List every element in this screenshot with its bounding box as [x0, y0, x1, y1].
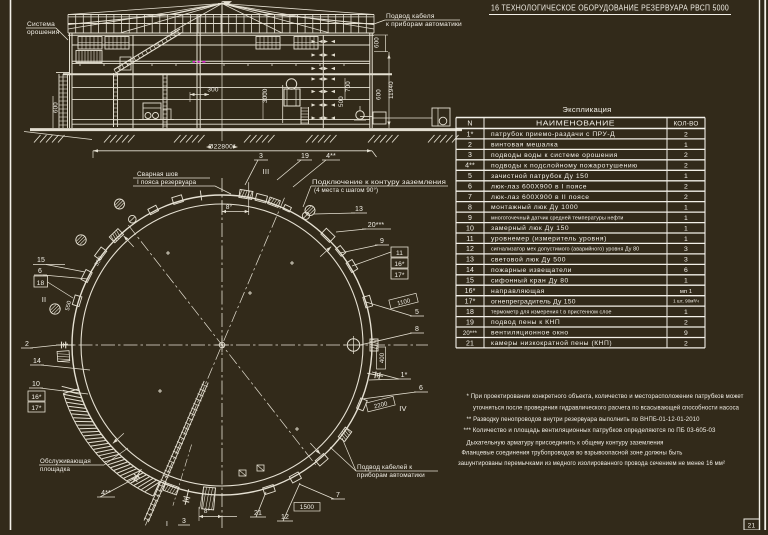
svg-text:монтажный люк Ду 1000: монтажный люк Ду 1000 — [491, 203, 578, 211]
svg-text:2: 2 — [684, 184, 688, 191]
svg-text:замерный люк Ду 150: замерный люк Ду 150 — [491, 224, 569, 232]
svg-text:21: 21 — [748, 523, 756, 530]
svg-text:** Разводку пенопроводов внутр: ** Разводку пенопроводов внутри резервуа… — [467, 416, 700, 423]
svg-text:16*: 16* — [465, 288, 476, 295]
svg-text:Сварная шов: Сварная шов — [137, 171, 179, 178]
svg-text:5: 5 — [468, 173, 472, 180]
svg-text:подводы воды к системе орошени: подводы воды к системе орошения — [491, 152, 618, 159]
svg-text:550: 550 — [65, 300, 73, 311]
svg-text:3: 3 — [468, 152, 472, 159]
svg-text:2: 2 — [684, 163, 688, 170]
svg-text:16 ТЕХНОЛОГИЧЕСКОЕ ОБОРУДОВАНИ: 16 ТЕХНОЛОГИЧЕСКОЕ ОБОРУДОВАНИЕ РЕЗЕРВУА… — [491, 4, 729, 13]
svg-text:2: 2 — [684, 340, 688, 347]
svg-text:5: 5 — [415, 309, 419, 316]
svg-text:Подвод кабеля: Подвод кабеля — [386, 12, 435, 20]
svg-text:III: III — [263, 167, 270, 176]
svg-text:зашунтированы перемычками из м: зашунтированы перемычками из медного изо… — [458, 460, 725, 467]
svg-text:10: 10 — [32, 381, 40, 388]
svg-text:подводы к подслойному пожароту: подводы к подслойному пожаротушению — [491, 162, 638, 170]
svg-text:4**: 4** — [465, 163, 475, 170]
svg-text:21: 21 — [466, 340, 474, 347]
svg-text:13: 13 — [355, 206, 363, 213]
svg-text:мп 1: мп 1 — [680, 289, 692, 295]
svg-text:10: 10 — [466, 225, 474, 232]
svg-text:16*: 16* — [31, 394, 42, 401]
svg-text:13: 13 — [466, 257, 474, 264]
svg-text:9: 9 — [380, 238, 384, 245]
svg-text:19: 19 — [466, 319, 474, 326]
svg-text:Подключение к контуру заземлен: Подключение к контуру заземления — [312, 179, 446, 186]
svg-text:Дыхательную арматуру присоедин: Дыхательную арматуру присоединить к обще… — [467, 439, 664, 447]
svg-text:500: 500 — [338, 96, 345, 107]
svg-text:7: 7 — [336, 492, 340, 499]
svg-text:300: 300 — [207, 87, 219, 94]
svg-text:термометр для измерения t в пр: термометр для измерения t в пристенном с… — [491, 309, 612, 315]
svg-text:20***: 20*** — [368, 222, 385, 229]
svg-text:Фланцевые соединения трубопров: Фланцевые соединения трубопроводов во вз… — [462, 449, 684, 457]
svg-text:2: 2 — [684, 319, 688, 326]
svg-text:2200: 2200 — [374, 401, 389, 410]
svg-text:1: 1 — [684, 204, 688, 211]
svg-text:1: 1 — [684, 225, 688, 232]
svg-text:600: 600 — [376, 89, 383, 100]
svg-text:Экспликация: Экспликация — [562, 105, 611, 114]
svg-text:8: 8 — [468, 204, 472, 211]
svg-text:7: 7 — [468, 194, 472, 201]
svg-text:вентиляционное окно: вентиляционное окно — [491, 330, 569, 337]
svg-text:2: 2 — [684, 131, 688, 138]
svg-text:патрубок приемо-раздачи с ПРУ-: патрубок приемо-раздачи с ПРУ-Д — [491, 130, 615, 138]
svg-text:Подвод кабелей к: Подвод кабелей к — [357, 463, 412, 471]
svg-text:1100: 1100 — [397, 298, 412, 307]
svg-text:600: 600 — [374, 37, 381, 48]
svg-text:2: 2 — [684, 194, 688, 201]
svg-text:2: 2 — [25, 341, 29, 348]
svg-text:17*: 17* — [465, 299, 476, 306]
svg-text:Ø22800*: Ø22800* — [208, 144, 236, 151]
svg-text:1: 1 — [684, 278, 688, 285]
svg-text:15: 15 — [466, 278, 474, 285]
svg-text:8: 8 — [415, 326, 419, 333]
svg-text:400: 400 — [380, 352, 386, 363]
svg-text:направляющая: направляющая — [491, 288, 545, 295]
svg-text:9: 9 — [468, 215, 472, 222]
svg-text:1: 1 — [684, 309, 688, 316]
svg-text:18: 18 — [466, 309, 474, 316]
svg-text:уточняться после проведения ги: уточняться после проведения гидравлическ… — [473, 404, 739, 412]
svg-text:3: 3 — [684, 257, 688, 264]
svg-text:700: 700 — [345, 81, 352, 92]
svg-text:14: 14 — [466, 267, 474, 274]
svg-text:винтовая мешалка: винтовая мешалка — [491, 142, 558, 149]
svg-text:II: II — [42, 295, 47, 304]
svg-text:1: 1 — [684, 215, 688, 222]
svg-text:(4 места с шагом 90°): (4 места с шагом 90°) — [314, 187, 378, 194]
svg-text:11: 11 — [466, 236, 473, 243]
svg-text:17*: 17* — [394, 272, 405, 279]
svg-text:пожарные извещатели: пожарные извещатели — [491, 267, 572, 274]
svg-text:20***: 20*** — [463, 331, 478, 337]
svg-text:11: 11 — [396, 250, 403, 257]
svg-text:* При проектировании конкретно: * При проектировании конкретного объекта… — [467, 392, 744, 400]
svg-text:6: 6 — [684, 267, 688, 274]
svg-text:приборам автоматики: приборам автоматики — [357, 471, 425, 479]
svg-text:IV: IV — [399, 404, 407, 413]
svg-text:1 шт, 90м³/ч: 1 шт, 90м³/ч — [673, 299, 699, 304]
svg-text:люк-лаз 600Х900 в II поясе: люк-лаз 600Х900 в II поясе — [491, 194, 589, 201]
svg-text:17*: 17* — [31, 405, 42, 412]
svg-text:6: 6 — [419, 385, 423, 392]
svg-text:3: 3 — [259, 153, 263, 160]
svg-text:1*: 1* — [467, 131, 474, 138]
svg-text:площадка: площадка — [40, 466, 71, 473]
svg-text:1500: 1500 — [300, 504, 315, 511]
svg-text:6: 6 — [38, 268, 42, 275]
svg-text:18: 18 — [37, 280, 45, 287]
svg-text:люк-лаз 600Х900 в I поясе: люк-лаз 600Х900 в I поясе — [491, 183, 587, 190]
svg-text:4**: 4** — [326, 153, 336, 160]
svg-text:зачистной патрубок Ду 150: зачистной патрубок Ду 150 — [491, 172, 589, 180]
svg-text:I: I — [166, 519, 168, 528]
svg-text:Система: Система — [27, 21, 55, 28]
svg-text:3: 3 — [182, 518, 186, 525]
svg-text:8°: 8° — [226, 203, 233, 211]
svg-text:орошения: орошения — [27, 29, 60, 36]
svg-text:600: 600 — [53, 102, 60, 113]
svg-text:к приборам автоматики: к приборам автоматики — [386, 20, 462, 28]
svg-text:1: 1 — [684, 142, 688, 149]
svg-text:2: 2 — [468, 142, 472, 149]
svg-text:550: 550 — [94, 256, 104, 268]
svg-text:уровнемер (измеритель уровня): уровнемер (измеритель уровня) — [491, 236, 607, 243]
svg-text:огнепреградитель Ду 150: огнепреградитель Ду 150 — [491, 298, 576, 305]
svg-text:12: 12 — [466, 246, 474, 253]
svg-text:3: 3 — [684, 246, 688, 253]
svg-text:1: 1 — [684, 173, 688, 180]
svg-text:*** Количество и площадь венти: *** Количество и площадь вентиляционных … — [464, 426, 716, 434]
svg-text:6: 6 — [468, 184, 472, 191]
svg-text:15: 15 — [37, 257, 45, 264]
svg-text:многоточечный датчик средней т: многоточечный датчик средней температуры… — [491, 214, 623, 221]
svg-text:1: 1 — [684, 236, 688, 243]
svg-text:НАИМЕНОВАНИЕ: НАИМЕНОВАНИЕ — [536, 121, 615, 128]
svg-text:I пояса резервуара: I пояса резервуара — [137, 179, 197, 186]
svg-text:подвод пены к КНП: подвод пены к КНП — [491, 319, 560, 326]
svg-text:N: N — [467, 121, 472, 128]
svg-text:камеры низкократной пены (КНП): камеры низкократной пены (КНП) — [491, 339, 612, 347]
svg-text:2: 2 — [684, 152, 688, 159]
svg-text:14: 14 — [33, 358, 41, 365]
svg-text:16*: 16* — [394, 261, 405, 268]
svg-text:КОЛ-ВО: КОЛ-ВО — [673, 121, 698, 128]
svg-text:1*: 1* — [401, 372, 408, 379]
svg-text:сигнализатор мех допустимого (: сигнализатор мех допустимого (аварийного… — [491, 246, 639, 253]
svg-text:Обслуживающая: Обслуживающая — [40, 458, 91, 465]
svg-text:19: 19 — [301, 153, 309, 160]
svg-text:8°: 8° — [204, 507, 211, 515]
svg-text:9: 9 — [684, 330, 688, 337]
svg-text:световой люк Ду 500: световой люк Ду 500 — [491, 256, 566, 264]
svg-text:сифонный кран Ду 80: сифонный кран Ду 80 — [491, 276, 569, 284]
